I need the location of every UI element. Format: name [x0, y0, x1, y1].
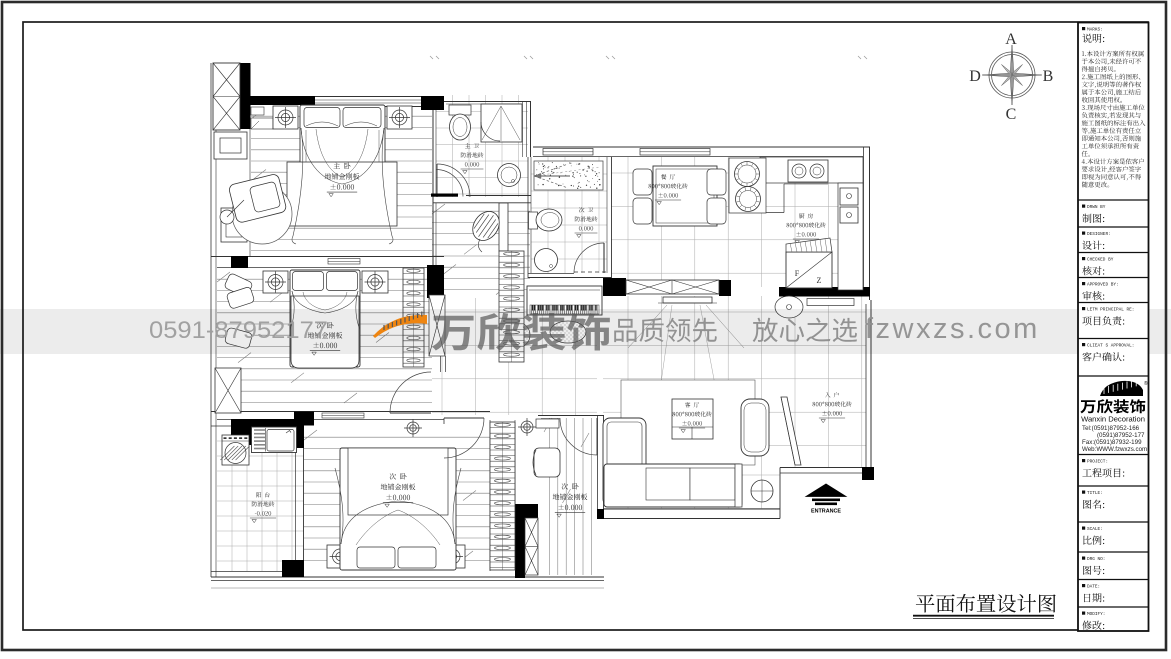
svg-text:Web:WWW.fzwxzs.com: Web:WWW.fzwxzs.com	[1082, 446, 1147, 453]
svg-text:PROJECT:: PROJECT:	[1087, 460, 1108, 465]
svg-text:MARKS:: MARKS:	[1087, 28, 1103, 33]
svg-text:CHECKED BY: CHECKED BY	[1087, 258, 1114, 263]
svg-text:DESIGNER:: DESIGNER:	[1087, 232, 1111, 237]
svg-text:Wanxin Decoration: Wanxin Decoration	[1081, 415, 1145, 424]
svg-text:ENTRANCE: ENTRANCE	[811, 509, 841, 515]
svg-text:DRG NO:: DRG NO:	[1087, 557, 1105, 562]
svg-text:®: ®	[1144, 380, 1148, 387]
svg-text:MODIFY:: MODIFY:	[1087, 612, 1105, 617]
svg-text:F: F	[795, 269, 800, 278]
svg-text:D: D	[969, 68, 981, 85]
svg-text:TITLE:: TITLE:	[1087, 491, 1103, 496]
svg-text:B: B	[1043, 68, 1054, 85]
svg-text:(0591)87952-177: (0591)87952-177	[1097, 432, 1145, 439]
svg-text:APPROVED BY:: APPROVED BY:	[1087, 283, 1119, 288]
svg-text:Z: Z	[817, 276, 822, 285]
svg-text:CLIEAT S APPROVAL:: CLIEAT S APPROVAL:	[1087, 344, 1134, 349]
svg-text:C: C	[1006, 106, 1017, 123]
svg-text:LETM PRINCIPAL RE:: LETM PRINCIPAL RE:	[1087, 308, 1134, 313]
svg-text:Fax:(0591)87932-199: Fax:(0591)87932-199	[1082, 439, 1142, 446]
svg-text:DATE:: DATE:	[1087, 585, 1100, 590]
svg-text:Tel:(0591)87952-166: Tel:(0591)87952-166	[1082, 425, 1140, 432]
svg-text:fzwxzs.com: fzwxzs.com	[865, 313, 1040, 345]
svg-text:DRWN BY: DRWN BY	[1087, 205, 1106, 210]
svg-text:SCALE:: SCALE:	[1087, 527, 1103, 532]
svg-text:0591-87952177: 0591-87952177	[149, 317, 328, 344]
svg-text:A: A	[1005, 31, 1017, 48]
